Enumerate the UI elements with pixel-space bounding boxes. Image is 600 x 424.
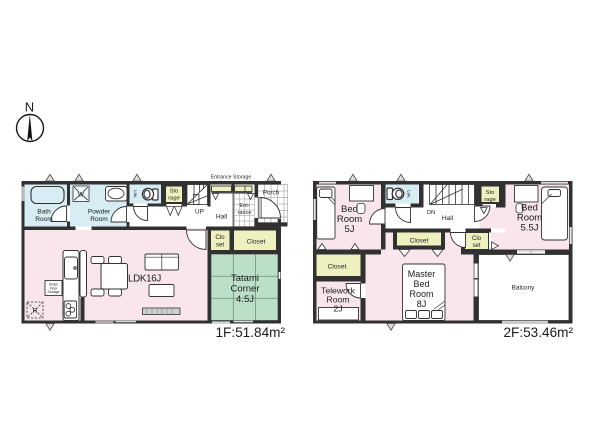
svg-text:2J: 2J — [333, 304, 342, 314]
svg-text:Ent-: Ent- — [239, 203, 249, 209]
svg-text:N: N — [25, 100, 34, 115]
svg-text:DN: DN — [427, 210, 435, 216]
svg-text:Corner: Corner — [230, 284, 259, 295]
svg-text:Tatami: Tatami — [231, 273, 259, 284]
svg-text:Hall: Hall — [216, 214, 228, 221]
svg-text:Clo: Clo — [472, 236, 482, 242]
svg-text:Clo: Clo — [215, 234, 225, 241]
svg-text:UP: UP — [195, 209, 204, 216]
svg-text:Closet: Closet — [410, 238, 429, 245]
svg-text:4.5J: 4.5J — [236, 294, 254, 305]
svg-text:rage: rage — [168, 196, 180, 202]
svg-text:Porch: Porch — [263, 190, 280, 197]
svg-text:Bath: Bath — [37, 209, 51, 216]
svg-text:rance: rance — [238, 210, 252, 216]
svg-text:8J: 8J — [417, 299, 427, 309]
svg-text:1F:51.84m²: 1F:51.84m² — [215, 325, 285, 340]
svg-text:Powder: Powder — [88, 209, 111, 216]
svg-text:Room: Room — [35, 216, 53, 223]
svg-text:set: set — [472, 243, 480, 249]
svg-text:5.5J: 5.5J — [521, 223, 539, 234]
svg-text:R: R — [33, 308, 38, 315]
svg-text:set: set — [216, 242, 225, 249]
svg-text:5J: 5J — [344, 224, 354, 235]
svg-text:Storage: Storage — [48, 290, 60, 294]
svg-text:W: W — [78, 192, 84, 198]
svg-text:Sto: Sto — [170, 189, 179, 195]
svg-text:Lav.: Lav. — [407, 190, 412, 198]
svg-text:Master: Master — [408, 269, 436, 279]
svg-text:Room: Room — [90, 216, 108, 223]
svg-text:Closet: Closet — [328, 264, 347, 271]
svg-text:Balcony: Balcony — [512, 285, 536, 292]
svg-text:Sto: Sto — [486, 190, 495, 196]
svg-text:2F:53.46m²: 2F:53.46m² — [503, 325, 573, 340]
svg-text:Hall: Hall — [442, 215, 454, 222]
svg-text:Closet: Closet — [247, 239, 266, 246]
svg-text:Lav.: Lav. — [133, 190, 138, 198]
svg-text:Bed: Bed — [413, 279, 429, 289]
svg-text:rage: rage — [484, 197, 496, 203]
svg-text:LDK16J: LDK16J — [128, 274, 161, 285]
svg-text:Room: Room — [409, 289, 433, 299]
svg-text:Entrance Storage: Entrance Storage — [211, 175, 252, 181]
